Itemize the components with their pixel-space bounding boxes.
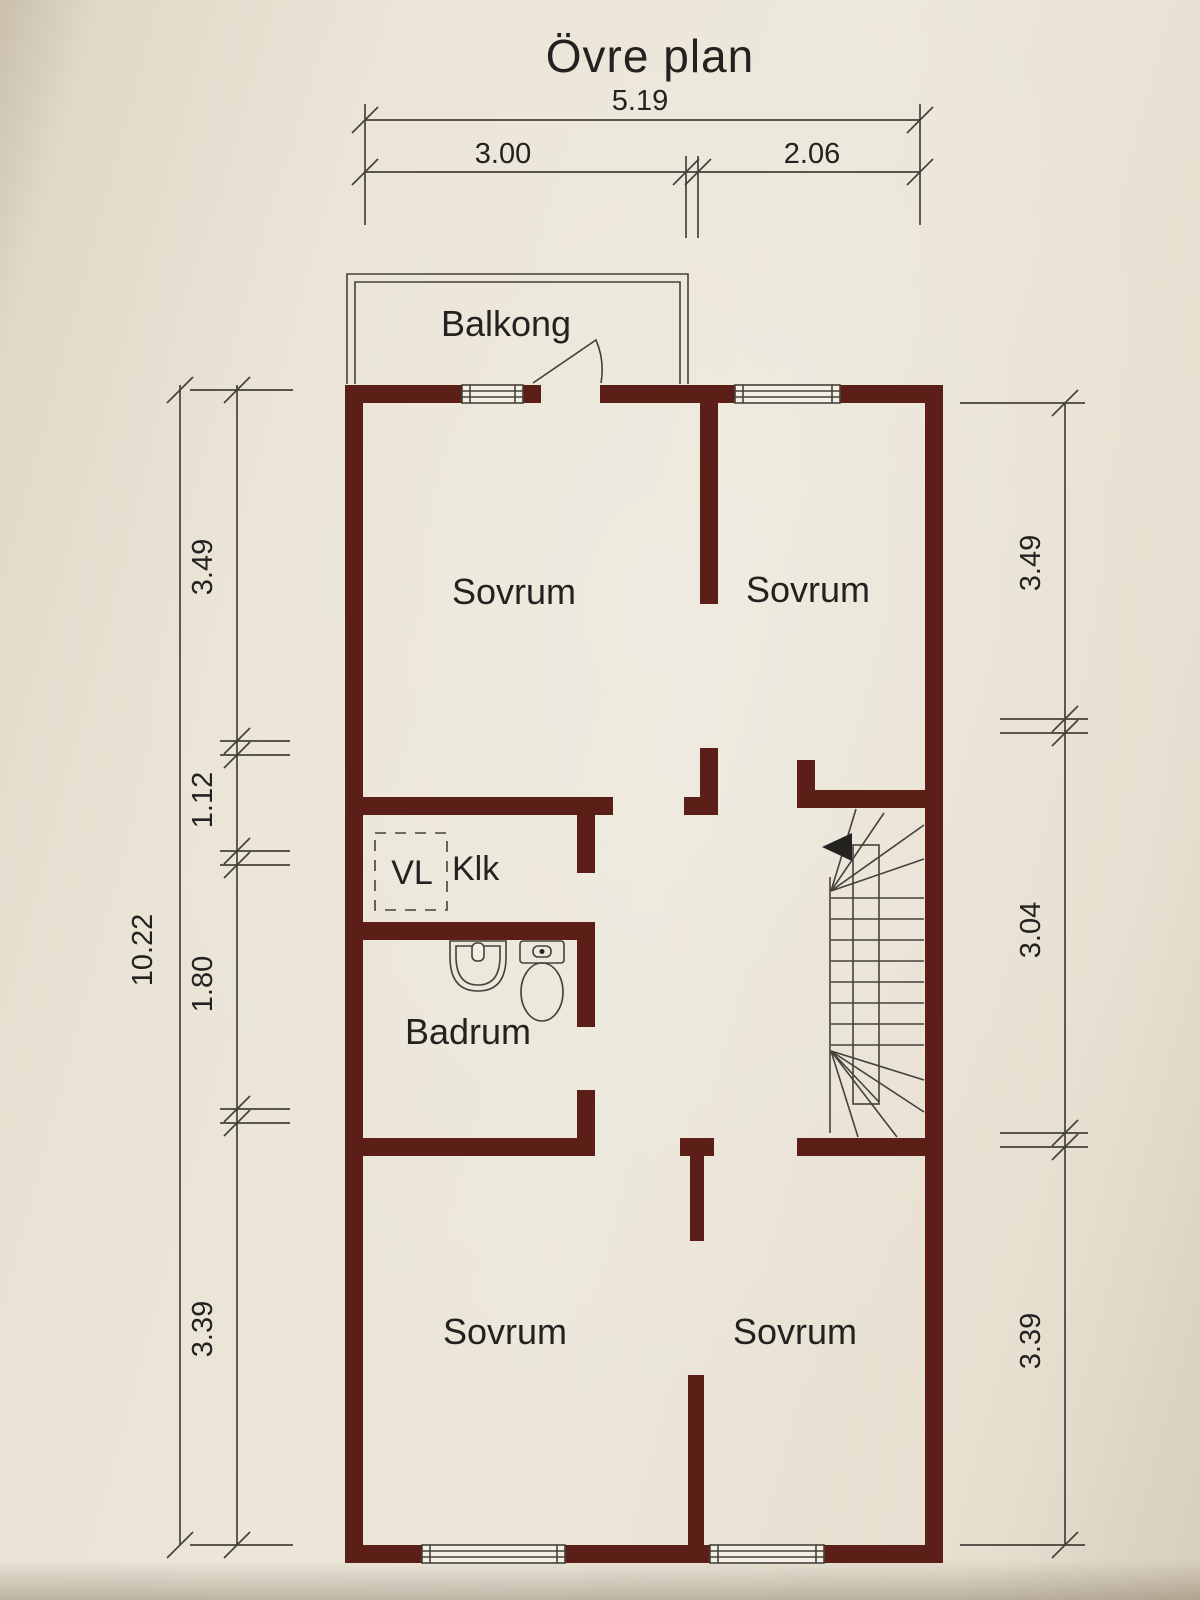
wall-stub-foot: [684, 797, 700, 815]
stair-winder-line: [831, 1051, 924, 1112]
window-bottom-right: [710, 1545, 824, 1563]
stair-winder-line: [831, 1051, 897, 1137]
wall-bath-right-upper: [577, 940, 595, 1027]
wall-hall-top: [363, 797, 613, 815]
wall-bottom-c: [824, 1545, 943, 1563]
wall-tstub-stem: [690, 1156, 704, 1241]
window-frame: [462, 385, 523, 403]
dim-top-right-part: 2.06: [784, 138, 840, 170]
wall-stair-top-return: [797, 760, 815, 790]
balcony-door-swing: [533, 340, 602, 383]
wall-top-b: [523, 385, 541, 403]
window-top-right: [735, 385, 840, 403]
floor-plan-page: Övre plan: [0, 0, 1200, 1600]
wall-bottom-b: [565, 1545, 710, 1563]
dim-top-total: 5.19: [612, 85, 668, 117]
stair-winder-line: [831, 1051, 858, 1137]
wall-top-a: [345, 385, 462, 403]
window-top-left: [462, 385, 523, 403]
dim-left-seg-2: 1.80: [187, 956, 219, 1012]
room-label-closet: Klk: [452, 850, 500, 888]
wall-partition-top: [700, 403, 718, 604]
wall-partition-stub: [700, 748, 718, 815]
dim-left-seg-1: 1.12: [187, 772, 219, 828]
room-label-balcony: Balkong: [441, 303, 571, 344]
plan-title: Övre plan: [546, 30, 754, 82]
wall-stair-bottom: [797, 1138, 943, 1156]
wall-top-d: [840, 385, 943, 403]
room-label-ventilation: VL: [391, 854, 433, 892]
dim-left-seg-3: 3.39: [187, 1301, 219, 1357]
staircase: [822, 809, 924, 1137]
toilet-button-dot: [540, 949, 545, 954]
wall-tstub-bar: [680, 1138, 714, 1156]
dim-right-seg-2: 3.39: [1015, 1313, 1047, 1369]
dimension-labels: 5.19 3.00 2.06 10.22 3.49 1.12 1.80 3.39…: [127, 85, 1047, 1369]
window-frame: [422, 1545, 565, 1563]
wall-exterior-right: [925, 385, 943, 1563]
stair-direction-arrow-icon: [822, 833, 852, 861]
room-labels: Balkong Sovrum Sovrum VL Klk Badrum Sovr…: [391, 303, 870, 1352]
room-label-bathroom: Badrum: [405, 1011, 531, 1052]
wall-bottom-a: [345, 1545, 422, 1563]
wall-klk-right: [577, 815, 595, 873]
wall-exterior-left: [345, 385, 363, 1563]
stair-winder-line: [831, 859, 924, 891]
wall-partition-bottom: [688, 1375, 704, 1545]
wall-bath-bottom: [363, 1138, 595, 1156]
dimension-lines: [167, 104, 1088, 1558]
dim-right-seg-1: 3.04: [1015, 902, 1047, 958]
room-label-bedroom-bottom-right: Sovrum: [733, 1311, 857, 1352]
room-label-bedroom-bottom-left: Sovrum: [443, 1311, 567, 1352]
stair-winder-line: [831, 825, 924, 891]
windows: [422, 385, 840, 1563]
sink-icon: [450, 941, 506, 991]
floor-plan-drawing: Övre plan: [0, 0, 1200, 1600]
dim-top-left-part: 3.00: [475, 138, 531, 170]
dim-left-seg-0: 3.49: [187, 539, 219, 595]
window-frame: [735, 385, 840, 403]
sink-tap: [472, 943, 484, 961]
dim-left-total: 10.22: [127, 914, 159, 987]
wall-top-c: [600, 385, 735, 403]
window-frame: [710, 1545, 824, 1563]
toilet-icon: [520, 941, 564, 1021]
dim-right-seg-0: 3.49: [1015, 535, 1047, 591]
room-label-bedroom-top-left: Sovrum: [452, 571, 576, 612]
wall-bath-top: [363, 922, 595, 940]
window-bottom-left: [422, 1545, 565, 1563]
wall-stair-top: [797, 790, 925, 808]
room-label-bedroom-top-right: Sovrum: [746, 569, 870, 610]
